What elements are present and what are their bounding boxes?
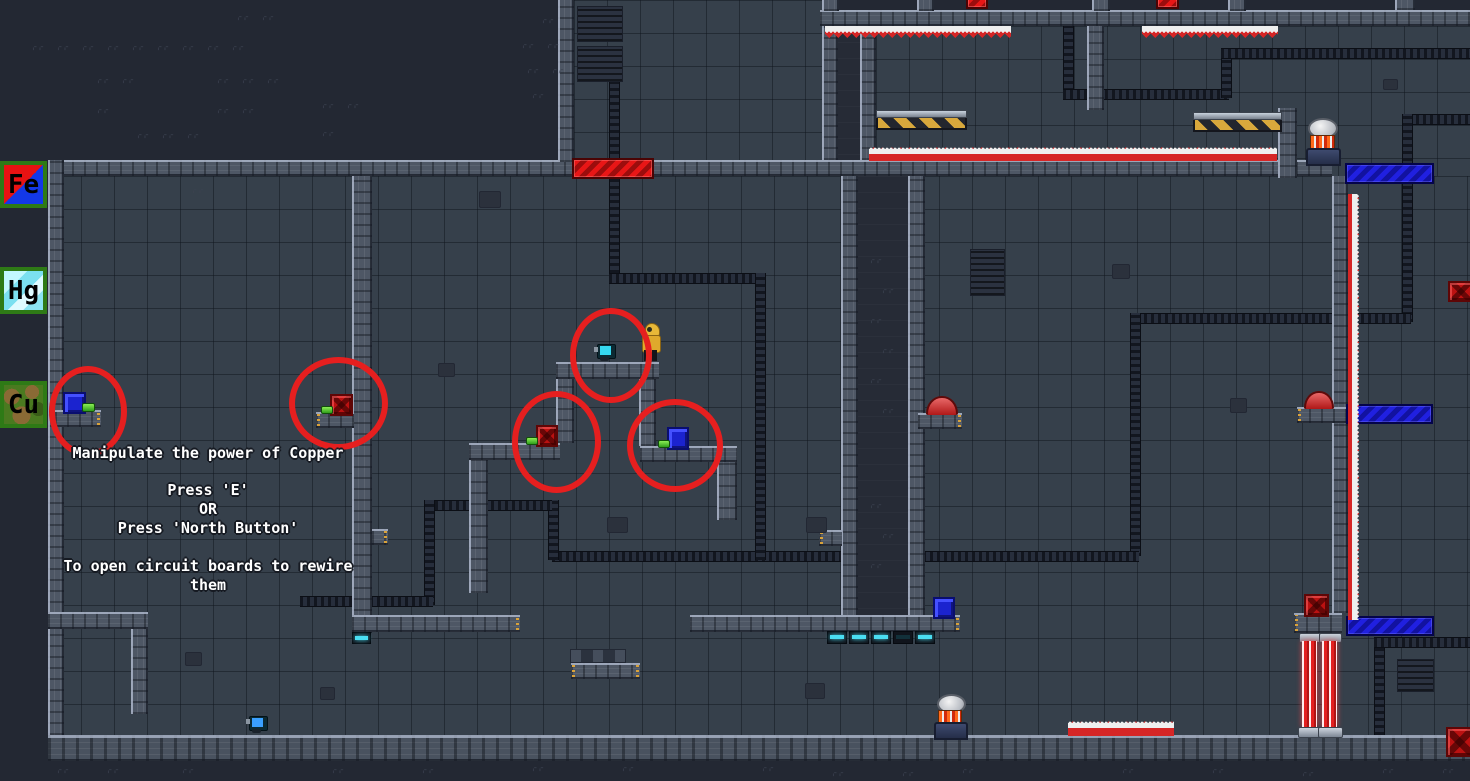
player-boot: [652, 350, 657, 361]
wall-post: [917, 0, 934, 11]
element-badge-copper: Cu: [0, 381, 47, 428]
rubble-mark: ⌌⌌: [545, 40, 558, 51]
vent-panel: [577, 6, 623, 42]
tutorial-text-line: To open circuit boards to rewire: [57, 557, 359, 575]
rubble-mark: ⌌⌌: [960, 765, 973, 776]
rubble-mark: ⌌⌌: [185, 130, 198, 141]
block-blue[interactable]: [933, 597, 955, 619]
tutorial-text-line: Manipulate the power of Copper: [57, 444, 359, 462]
pipe: [1402, 114, 1413, 322]
rubble-mark: ⌌⌌: [160, 130, 173, 141]
ledge-button: [1297, 407, 1347, 423]
element-symbol-hg: Hg: [8, 276, 39, 306]
tutorial-text-line: them: [57, 576, 359, 594]
wall: [860, 26, 876, 160]
ledge-button: [918, 413, 962, 429]
game-viewport: Manipulate the power of Copper Press 'E'…: [0, 0, 1470, 781]
rubble-mark: ⌌⌌: [530, 763, 543, 774]
laser-base: [1318, 727, 1343, 738]
rubble-mark: ⌌⌌: [345, 100, 358, 111]
pipe: [428, 500, 552, 511]
block-red[interactable]: [1446, 727, 1470, 757]
pipe: [1374, 637, 1385, 735]
rubble-mark: ⌌⌌: [180, 765, 193, 776]
wall-patch: [805, 683, 825, 699]
hazard-platform-rail: [876, 110, 967, 118]
hazard-platform: [1193, 112, 1282, 132]
wall-hanging: [1087, 26, 1104, 110]
wall-patch: [185, 652, 202, 666]
rubble-mark: ⌌⌌: [868, 500, 881, 511]
robot-companion: [246, 715, 270, 734]
pipe: [1130, 313, 1141, 556]
red-door: [572, 158, 654, 179]
rubble-mark: ⌌⌌: [180, 42, 193, 53]
lamp-base: [1306, 148, 1341, 166]
pipe: [1063, 22, 1074, 98]
tutorial-circle: [289, 357, 388, 450]
wall-mid-left-support: [469, 460, 488, 593]
wall-patch: [1112, 264, 1130, 279]
laser-beam: [1322, 641, 1337, 727]
rubble-mark: ⌌⌌: [1300, 768, 1313, 779]
spikes-ceiling: [1142, 26, 1278, 38]
vent-light: [915, 631, 935, 644]
rubble-mark: ⌌⌌: [240, 75, 253, 86]
wall-patch: [438, 363, 455, 377]
block-red[interactable]: [1448, 281, 1470, 302]
rubble-mark: ⌌⌌: [760, 763, 773, 774]
wall: [908, 176, 925, 632]
wall-patch: [1230, 398, 1247, 413]
blue-door: [1345, 163, 1434, 184]
spikes-floor: [869, 147, 1277, 161]
rubble-mark: ⌌⌌: [880, 345, 893, 356]
red-door-top: [966, 0, 988, 9]
rubble-mark: ⌌⌌: [1440, 765, 1453, 776]
rubble-mark: ⌌⌌: [190, 185, 203, 196]
rubble-mark: ⌌⌌: [240, 105, 253, 116]
rubble-mark: ⌌⌌: [105, 765, 118, 776]
ceiling-top: [820, 10, 1470, 26]
rubble-mark: ⌌⌌: [120, 75, 133, 86]
wall-patch: [607, 517, 628, 533]
rubble-mark: ⌌⌌: [868, 560, 881, 571]
rubble-mark: ⌌⌌: [520, 40, 533, 51]
laser-beam: [1302, 641, 1317, 727]
spikes-ceiling: [825, 26, 1011, 38]
rubble-mark: ⌌⌌: [30, 42, 43, 53]
rubble-mark: ⌌⌌: [105, 42, 118, 53]
ceiling-main: [48, 160, 1332, 176]
rubble-mark: ⌌⌌: [868, 315, 881, 326]
spikes-wall: [1348, 194, 1359, 620]
rubble-mark: ⌌⌌: [330, 765, 343, 776]
robot-screen: [252, 718, 263, 727]
player-visor: [647, 327, 652, 332]
rubble-mark: ⌌⌌: [320, 100, 333, 111]
lamp-base: [934, 722, 968, 740]
tutorial-circle: [627, 399, 723, 492]
wall-mid-right-support: [717, 462, 737, 520]
wall-right-boundary: [1332, 176, 1348, 613]
wall-post: [1228, 0, 1246, 11]
platform-floating: [571, 663, 640, 679]
wall-patch: [806, 517, 827, 533]
tutorial-text-line: Press 'North Button': [57, 519, 359, 537]
rubble-mark: ⌌⌌: [135, 130, 148, 141]
vent-light: [827, 631, 847, 644]
pipe: [609, 273, 764, 284]
spikes-floor: [1068, 721, 1174, 736]
wall: [841, 176, 858, 632]
rubble-mark: ⌌⌌: [880, 285, 893, 296]
rubble-mark: ⌌⌌: [550, 65, 563, 76]
blue-door: [1346, 404, 1433, 424]
rubble-mark: ⌌⌌: [540, 15, 553, 26]
vent-panel: [577, 46, 623, 82]
rubble-mark: ⌌⌌: [155, 42, 168, 53]
floor-lower-left: [352, 615, 520, 632]
wall-ledge-vertical: [131, 629, 148, 714]
rubble-mark: ⌌⌌: [620, 763, 633, 774]
rubble-mark: ⌌⌌: [530, 90, 543, 101]
wall-patch: [1383, 79, 1398, 90]
element-badge-iron: Fe: [0, 161, 47, 208]
element-symbol-fe: Fe: [8, 170, 39, 200]
ledge-small: [372, 529, 388, 545]
rubble-mark: ⌌⌌: [880, 405, 893, 416]
rubble-mark: ⌌⌌: [95, 105, 108, 116]
wall-grille: [570, 649, 626, 663]
pipe: [1130, 313, 1411, 324]
rubble-mark: ⌌⌌: [260, 12, 273, 23]
rubble-mark: ⌌⌌: [525, 65, 538, 76]
red-door-top: [1156, 0, 1179, 9]
shaft-upper: [838, 26, 860, 160]
blue-door: [1346, 616, 1434, 636]
pipe: [1221, 48, 1470, 59]
wall: [822, 26, 838, 160]
wall-patch: [479, 191, 501, 208]
rubble-mark: ⌌⌌: [830, 768, 843, 779]
rubble-mark: ⌌⌌: [95, 75, 108, 86]
element-badge-mercury: Hg: [0, 267, 47, 314]
wall-top-divider: [558, 0, 574, 162]
wall-ledge-horizontal: [48, 612, 148, 629]
alarm-lamp: [1306, 118, 1338, 162]
vent-panel: [1397, 659, 1434, 692]
rubble-mark: ⌌⌌: [230, 42, 243, 53]
rubble-mark: ⌌⌌: [1380, 765, 1393, 776]
robot-arm: [246, 719, 250, 724]
vent-light: [849, 631, 869, 644]
hazard-platform-rail: [1193, 112, 1282, 120]
rubble-mark: ⌌⌌: [320, 128, 333, 139]
rubble-mark: ⌌⌌: [265, 75, 278, 86]
rubble-mark: ⌌⌌: [130, 42, 143, 53]
block-red[interactable]: [1304, 594, 1329, 617]
tutorial-text-line: Press 'E': [57, 481, 359, 499]
rubble-mark: ⌌⌌: [1120, 765, 1133, 776]
wall-post: [1092, 0, 1110, 11]
rubble-mark: ⌌⌌: [880, 530, 893, 541]
wall-post: [1395, 0, 1415, 10]
rubble-mark: ⌌⌌: [420, 765, 433, 776]
vent-panel: [970, 249, 1005, 296]
rubble-mark: ⌌⌌: [55, 42, 68, 53]
rubble-mark: ⌌⌌: [80, 42, 93, 53]
rubble-mark: ⌌⌌: [868, 255, 881, 266]
vent-light-off: [893, 631, 913, 644]
rubble-mark: ⌌⌌: [868, 375, 881, 386]
element-symbol-cu: Cu: [8, 390, 39, 420]
robot-tread: [252, 729, 261, 733]
vent-light: [871, 631, 891, 644]
rubble-mark: ⌌⌌: [1210, 765, 1223, 776]
vent-light: [352, 632, 371, 644]
tutorial-circle: [570, 308, 652, 403]
alarm-lamp: [934, 694, 965, 736]
rubble-mark: ⌌⌌: [55, 765, 68, 776]
floor-main: [48, 735, 1470, 761]
wall-patch: [320, 687, 335, 700]
pipe: [1374, 637, 1470, 648]
floor-shaft-bottom: [690, 615, 960, 632]
rubble-mark: ⌌⌌: [900, 768, 913, 779]
rubble-mark: ⌌⌌: [205, 42, 218, 53]
pipe: [424, 500, 435, 605]
tutorial-circle: [512, 391, 601, 493]
pipe: [755, 273, 766, 560]
rubble-mark: ⌌⌌: [235, 12, 248, 23]
tutorial-text-line: OR: [57, 500, 359, 518]
wall-post: [822, 0, 839, 11]
rubble-mark: ⌌⌌: [215, 105, 228, 116]
rubble-mark: ⌌⌌: [215, 75, 228, 86]
shaft-lower: [858, 176, 908, 615]
hazard-platform: [876, 110, 967, 130]
